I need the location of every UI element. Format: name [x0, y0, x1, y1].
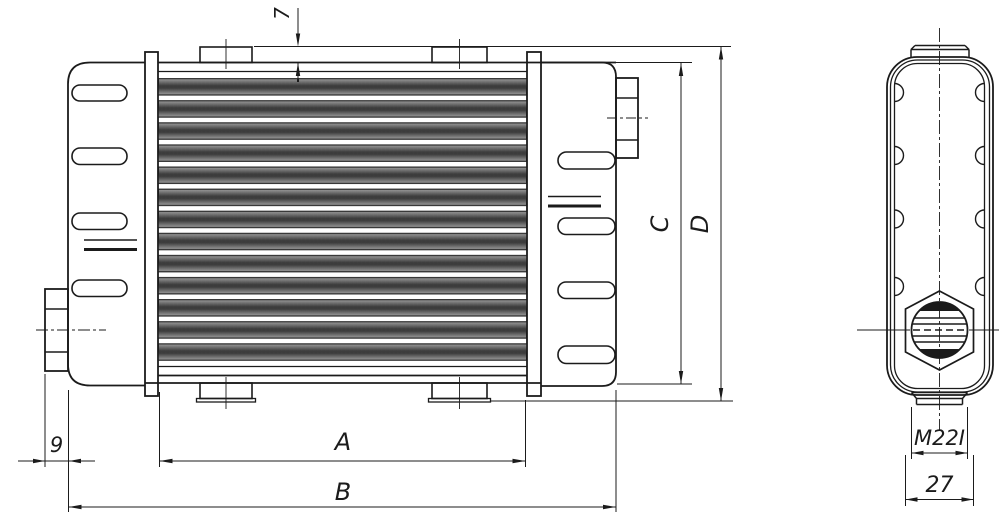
- dimension-label-27: 27: [926, 473, 954, 498]
- arrowhead: [69, 505, 82, 509]
- arrowhead: [603, 505, 616, 509]
- dimension-label-9: 9: [50, 433, 63, 457]
- arrowhead: [679, 371, 683, 384]
- top-boss-right: [432, 39, 487, 69]
- dimension-label-7: 7: [270, 7, 294, 20]
- right-tank-slot: [558, 346, 615, 364]
- dimension-label-B: B: [335, 478, 351, 506]
- core: [145, 63, 616, 384]
- arrowhead: [719, 47, 723, 60]
- right-tank-slot: [558, 218, 615, 235]
- left-tank-slot: [72, 280, 127, 297]
- bottom-boss-left: [197, 377, 256, 409]
- arrowhead: [679, 63, 683, 76]
- bottom-boss-right: [429, 377, 491, 409]
- arrowhead: [296, 63, 300, 77]
- left-tank-slot: [72, 213, 127, 230]
- arrowhead: [906, 497, 918, 501]
- right-hex-fitting: [607, 78, 648, 158]
- arrowhead: [912, 451, 924, 455]
- arrowhead: [962, 497, 974, 501]
- left-tank-slot: [72, 85, 127, 101]
- dimension-label-A: A: [333, 428, 351, 456]
- dimension-label-D: D: [686, 215, 714, 233]
- left-hex-fitting: [36, 289, 106, 371]
- arrowhead: [33, 459, 45, 463]
- front-view: [36, 39, 648, 409]
- technical-drawing-page: 7 9 A B C D: [0, 0, 1000, 528]
- arrowhead: [719, 388, 723, 401]
- right-tank-slot: [558, 282, 615, 299]
- arrowhead: [69, 459, 81, 463]
- arrowhead: [296, 34, 300, 47]
- left-tank-slot: [72, 148, 127, 165]
- technical-drawing-canvas: 7 9 A B C D: [0, 0, 1000, 528]
- arrowhead: [160, 459, 173, 463]
- dimension-label-thread: M22I: [914, 426, 965, 450]
- core-side-plate-right: [527, 52, 541, 396]
- end-view-top-boss: [911, 46, 969, 58]
- arrowhead: [956, 451, 968, 455]
- end-view-outer-shell: [887, 57, 993, 395]
- core-fins: [158, 78, 527, 361]
- top-boss-left: [200, 39, 252, 69]
- core-side-plate-left: [145, 52, 158, 396]
- end-view: [857, 28, 999, 431]
- dimension-label-C: C: [646, 215, 674, 232]
- right-tank-slot: [558, 152, 615, 169]
- left-tank: [68, 63, 145, 386]
- right-tank: [541, 63, 616, 387]
- arrowhead: [513, 459, 526, 463]
